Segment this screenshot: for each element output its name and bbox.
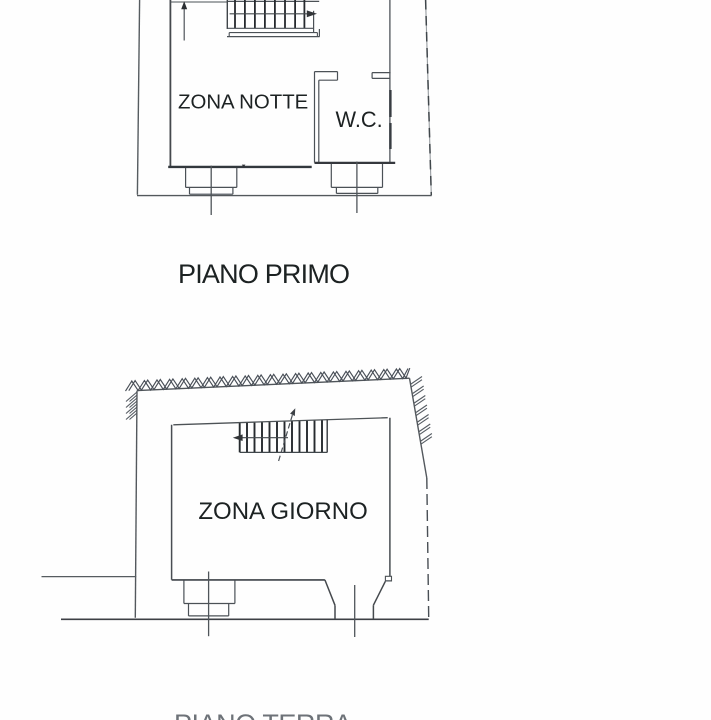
svg-text:W.C.: W.C. — [336, 107, 383, 132]
svg-text:ZONA GIORNO: ZONA GIORNO — [198, 498, 367, 525]
svg-text:PIANO TERRA: PIANO TERRA — [174, 709, 352, 720]
svg-text:ZONA NOTTE: ZONA NOTTE — [178, 91, 308, 113]
svg-text:PIANO PRIMO: PIANO PRIMO — [178, 259, 349, 289]
